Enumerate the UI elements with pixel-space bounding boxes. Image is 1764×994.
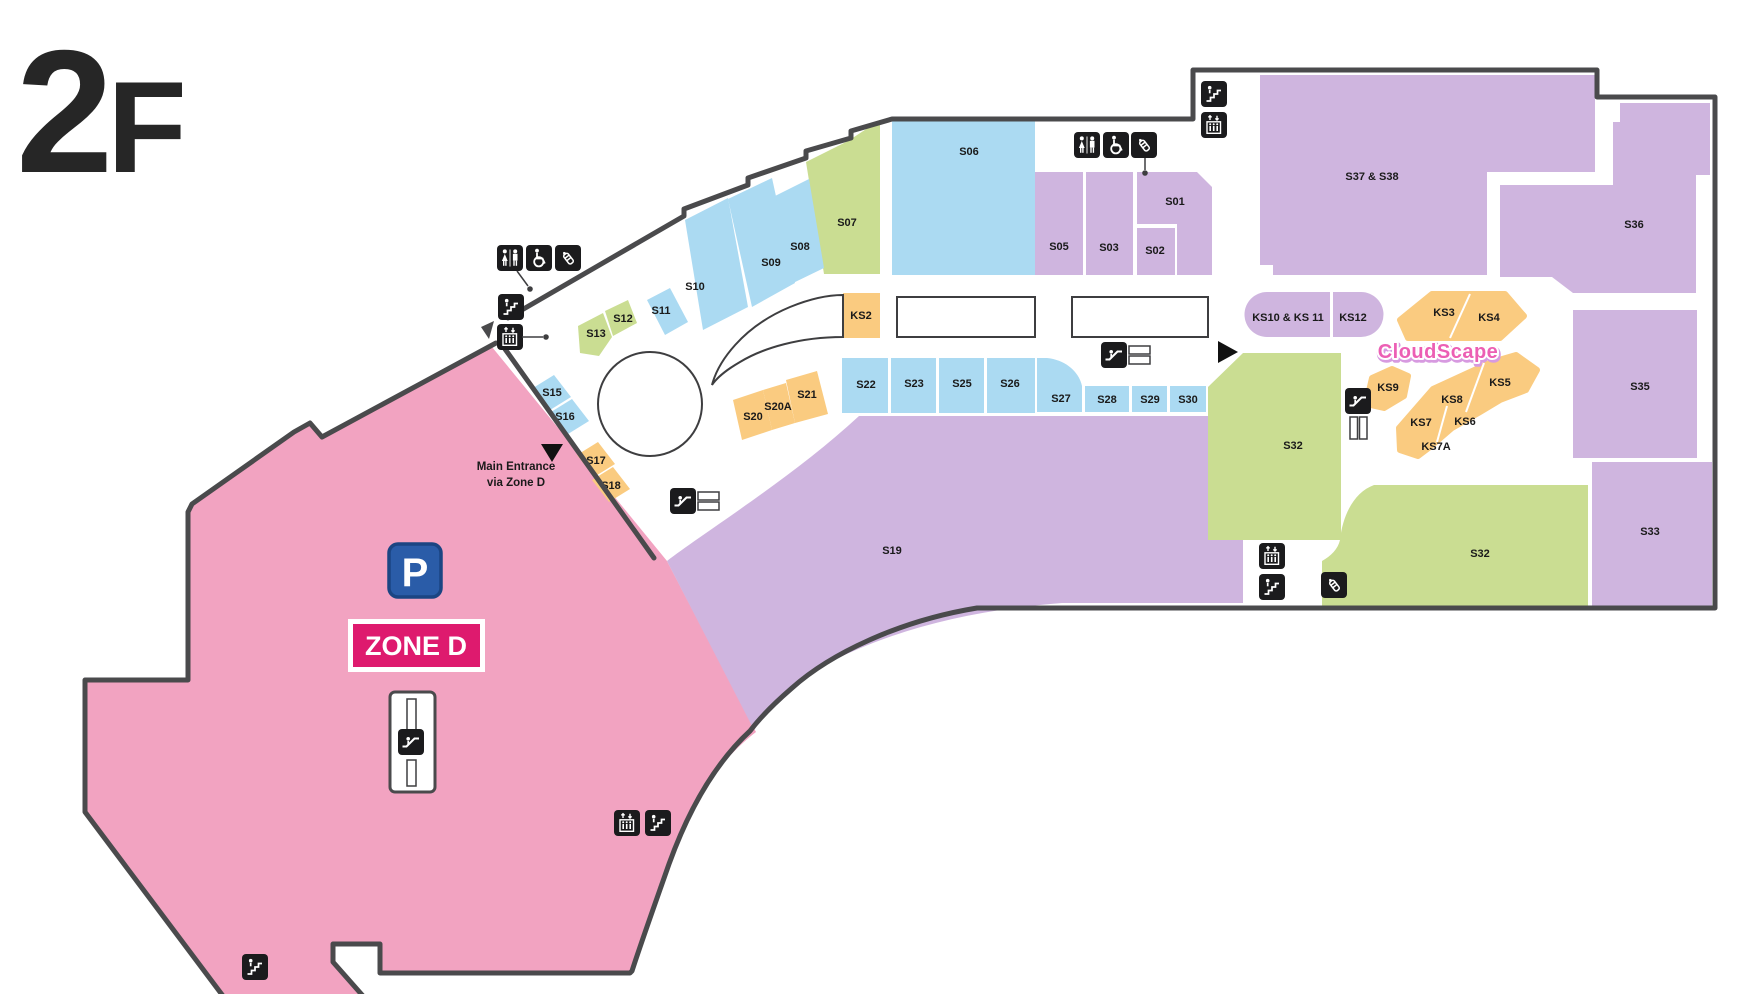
nursing-room-icon — [555, 245, 581, 271]
room-label-s30: S30 — [1178, 394, 1198, 406]
room-label-s02: S02 — [1145, 245, 1165, 257]
room-label-ks2: KS2 — [850, 310, 871, 322]
escalator-landing-icon — [1350, 417, 1367, 439]
stairs-icon — [645, 810, 671, 836]
stairs-icon — [1259, 574, 1285, 600]
room-label-ks10_11: KS10 & KS 11 — [1252, 312, 1324, 324]
room-s32_upper — [1208, 353, 1341, 540]
room-label-s03: S03 — [1099, 242, 1119, 254]
room-label-ks9: KS9 — [1377, 382, 1398, 394]
room-label-s07: S07 — [837, 217, 857, 229]
room-label-s36: S36 — [1624, 219, 1644, 231]
zone-d-badge-label: ZONE D — [365, 631, 467, 661]
parking-sign-label: P — [402, 551, 429, 595]
room-label-s22: S22 — [856, 379, 876, 391]
room-label-s23: S23 — [904, 378, 924, 390]
room-label-s33: S33 — [1640, 526, 1660, 538]
escalator-icon — [1101, 342, 1127, 368]
elevator-icon — [1201, 112, 1227, 138]
room-label-s27: S27 — [1051, 393, 1071, 405]
nursing-room-icon — [1321, 572, 1347, 598]
stairs-icon — [242, 954, 268, 980]
poi-marker-dot — [543, 334, 549, 340]
room-label-s32_upper: S32 — [1283, 440, 1303, 452]
room-label-ks7: KS7 — [1410, 417, 1431, 429]
escalator-icon — [670, 488, 696, 514]
wheelchair-accessible-icon — [526, 245, 552, 271]
room-label-s35: S35 — [1630, 381, 1650, 393]
toilets-icon — [497, 245, 523, 271]
poi-marker-dot — [527, 286, 533, 292]
room-label-s01: S01 — [1165, 196, 1185, 208]
room-ks3 — [1400, 294, 1524, 338]
room-label-ks7a: KS7A — [1421, 441, 1450, 453]
room-label-ks4: KS4 — [1478, 312, 1500, 324]
room-label-s37_38: S37 & S38 — [1345, 171, 1398, 183]
room-label-s32_lower: S32 — [1470, 548, 1490, 560]
entrance-note-line1: Main Entrance — [477, 461, 556, 473]
room-label-s20: S20 — [743, 411, 763, 423]
corridor-void-b — [1072, 297, 1208, 337]
room-label-s06: S06 — [959, 146, 979, 158]
room-label-s09: S09 — [761, 257, 781, 269]
room-s06 — [892, 119, 1035, 275]
room-label-s26: S26 — [1000, 378, 1020, 390]
wall-doorway-notch — [481, 321, 494, 339]
room-s32_lower — [1322, 485, 1588, 607]
brand-logo: CloudScape CloudScape — [1378, 341, 1500, 365]
mall-floor-plan: 2F S01S02S03S05S06S07S08S09S10S11S12S13S… — [0, 0, 1764, 994]
room-label-s12: S12 — [613, 313, 633, 325]
elevator-icon — [497, 324, 523, 350]
stairs-icon — [498, 294, 524, 320]
room-label-s05: S05 — [1049, 241, 1069, 253]
room-label-s20a: S20A — [764, 401, 792, 413]
room-s19 — [667, 416, 1243, 728]
rooms-layer: S01S02S03S05S06S07S08S09S10S11S12S13S15S… — [533, 75, 1712, 728]
toilets-icon — [1074, 132, 1100, 158]
brand-logo-text: CloudScape — [1378, 341, 1499, 363]
elevator-icon — [1259, 543, 1285, 569]
escalator-icon — [398, 729, 424, 755]
room-s05 — [1035, 172, 1083, 275]
atrium-circle — [598, 352, 702, 456]
room-label-ks6: KS6 — [1454, 416, 1475, 428]
room-label-s28: S28 — [1097, 394, 1117, 406]
room-label-s13: S13 — [586, 328, 606, 340]
room-s03 — [1086, 172, 1133, 275]
room-label-s19: S19 — [882, 545, 902, 557]
nursing-room-icon — [1131, 132, 1157, 158]
floor-plan-svg: 2F S01S02S03S05S06S07S08S09S10S11S12S13S… — [0, 0, 1764, 994]
room-label-s10: S10 — [685, 281, 705, 293]
room-label-s21: S21 — [797, 389, 817, 401]
room-label-ks5: KS5 — [1489, 377, 1510, 389]
room-label-ks3: KS3 — [1433, 307, 1454, 319]
room-label-ks8: KS8 — [1441, 394, 1462, 406]
escalator-landing-icon — [1129, 346, 1150, 364]
room-label-s25: S25 — [952, 378, 972, 390]
corridor-void-a — [897, 297, 1035, 337]
entrance-note-line2: via Zone D — [487, 477, 545, 489]
elevator-icon — [614, 810, 640, 836]
entrance-arrow-icon — [1218, 341, 1238, 363]
escalator-landing-icon — [698, 492, 719, 510]
stairs-icon — [1201, 81, 1227, 107]
wheelchair-accessible-icon — [1103, 132, 1129, 158]
room-label-s11: S11 — [652, 305, 671, 317]
room-label-s08: S08 — [790, 241, 810, 253]
parking-sign: P — [389, 544, 441, 597]
zone-d-badge: ZONE D — [348, 619, 485, 672]
poi-marker-dot — [1142, 170, 1148, 176]
floor-title: 2F — [16, 15, 182, 210]
room-label-ks12: KS12 — [1339, 312, 1367, 324]
room-label-s29: S29 — [1140, 394, 1160, 406]
escalator-icon — [1345, 388, 1371, 414]
room-label-s15: S15 — [542, 387, 562, 399]
